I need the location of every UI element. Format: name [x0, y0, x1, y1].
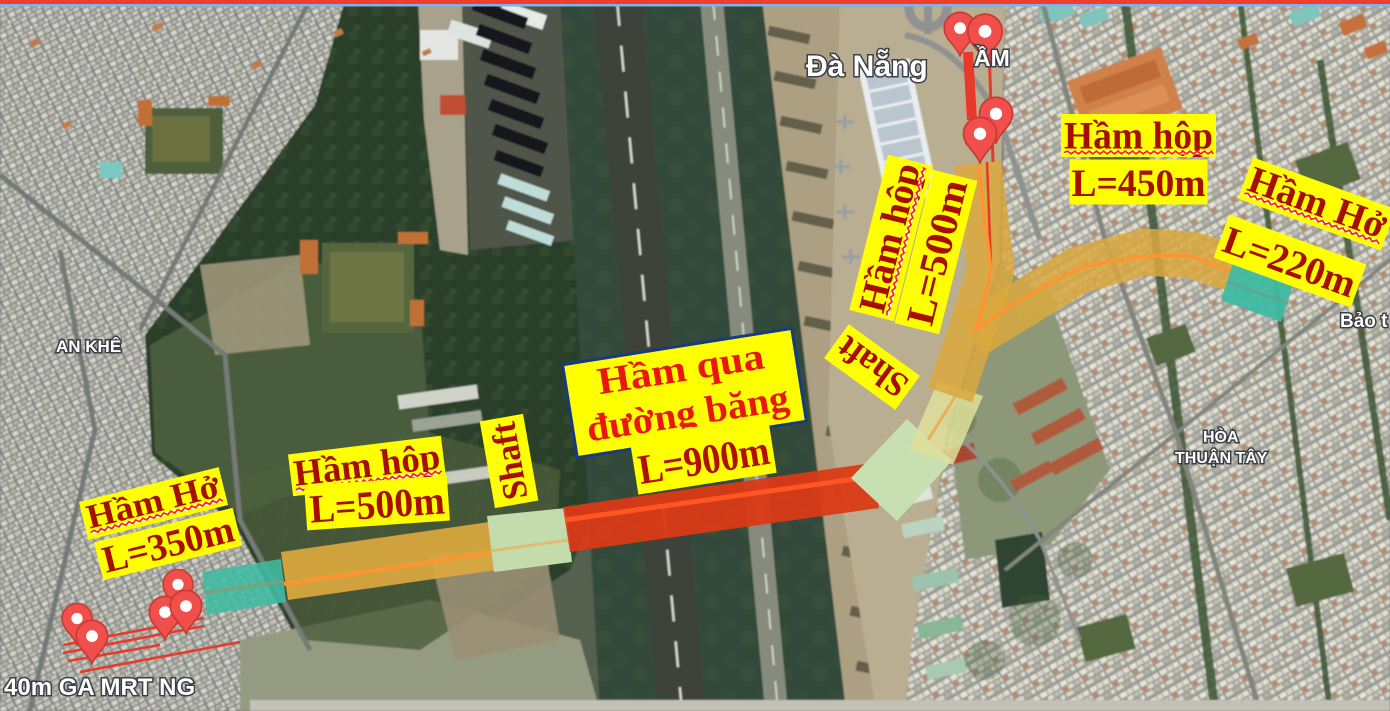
svg-text:AN KHÊ: AN KHÊ: [56, 337, 121, 356]
svg-text:HÒA: HÒA: [1203, 427, 1239, 446]
svg-text:L=450m: L=450m: [1072, 162, 1206, 205]
svg-text:THUẬN TÂY: THUẬN TÂY: [1175, 448, 1268, 467]
svg-text:40m GA MRT NG: 40m GA MRT NG: [4, 674, 195, 701]
svg-text:L=500m: L=500m: [308, 477, 446, 531]
svg-text:Bảo t: Bảo t: [1340, 311, 1388, 332]
svg-text:ẦM: ẦM: [974, 44, 1010, 71]
svg-text:Đà Nẵng: Đà Nẵng: [806, 49, 928, 83]
